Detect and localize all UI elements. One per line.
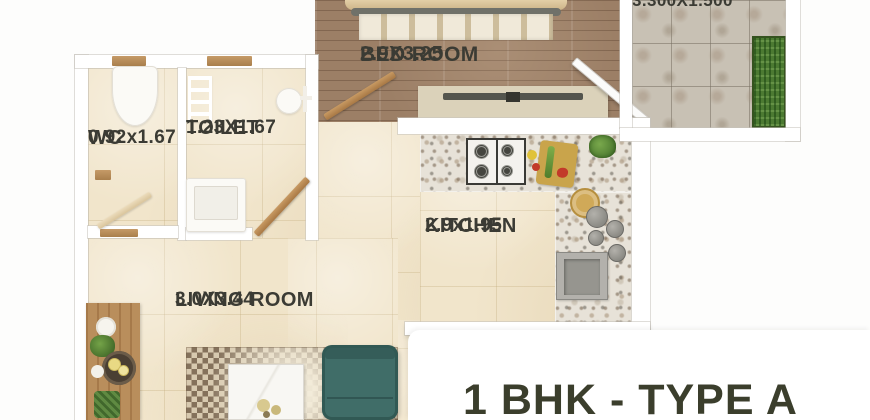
bed-mattress — [359, 14, 553, 40]
bedroom-dims: 2.9X3.25 — [360, 42, 443, 66]
wc-window — [112, 56, 146, 66]
living-room-dims: 3.0X3.44 — [175, 288, 254, 311]
shower-rail — [303, 86, 307, 112]
burner-icon — [474, 164, 489, 179]
wall-balcony-bottom — [620, 128, 800, 141]
sink-basin — [564, 259, 600, 295]
table-decor — [263, 411, 270, 418]
herb-plant — [589, 135, 616, 158]
wall-toilet-right — [306, 55, 318, 240]
title-panel: 1 BHK - TYPE A — [408, 330, 870, 420]
wall-balcony-right — [786, 0, 800, 141]
coffee-table — [228, 364, 304, 420]
toilet-dims: 1.23X1.67 — [186, 116, 276, 139]
round-tray — [102, 351, 136, 385]
floor-plan: 3.300X1.500 — [0, 0, 870, 420]
cutting-board — [535, 140, 578, 188]
stove-divider — [496, 140, 498, 183]
wall-wc-toilet-divider — [178, 68, 186, 240]
wash-basin — [186, 178, 246, 232]
shower-head — [276, 88, 302, 114]
pot — [608, 244, 626, 262]
green-tray — [94, 391, 120, 418]
plan-title: 1 BHK - TYPE A — [463, 376, 798, 420]
tv-unit — [418, 86, 608, 118]
wall-bedroom-balcony-divider — [620, 0, 632, 128]
kitchen-dims: 2.9x1.95 — [425, 214, 502, 237]
pot — [606, 220, 624, 238]
lemon-slice — [118, 365, 129, 376]
wc-dims: 0.92x1.67 — [88, 126, 176, 149]
planter-box — [752, 36, 786, 128]
sofa-seam — [327, 397, 393, 399]
kitchen-sink — [556, 252, 608, 300]
red-pepper — [556, 167, 568, 178]
wall-bedroom-bottom — [398, 118, 650, 134]
wall-kitchen-right — [632, 118, 650, 335]
table-decor — [257, 399, 270, 412]
basin-inner — [194, 186, 238, 220]
toilet-window — [207, 56, 252, 66]
burner-icon — [501, 165, 513, 177]
pot — [588, 230, 604, 246]
leek — [544, 146, 555, 179]
burner-icon — [501, 144, 514, 157]
white-plate — [96, 317, 116, 337]
console-table — [86, 303, 140, 420]
tomato — [532, 163, 540, 171]
balcony-dims: 3.300X1.500 — [632, 0, 733, 12]
wc-door-threshold — [100, 229, 138, 237]
gas-stove — [466, 138, 526, 185]
yellow-pepper — [527, 150, 537, 160]
pot — [586, 206, 608, 228]
tv-mount — [506, 92, 520, 102]
wc-shelf — [95, 170, 111, 180]
table-decor — [271, 405, 281, 415]
sofa — [322, 345, 398, 420]
small-plate — [91, 365, 104, 378]
burner-icon — [474, 144, 489, 159]
sofa-backrest — [325, 348, 395, 359]
bed — [345, 0, 567, 40]
balcony-floor: 3.300X1.500 — [632, 0, 786, 130]
